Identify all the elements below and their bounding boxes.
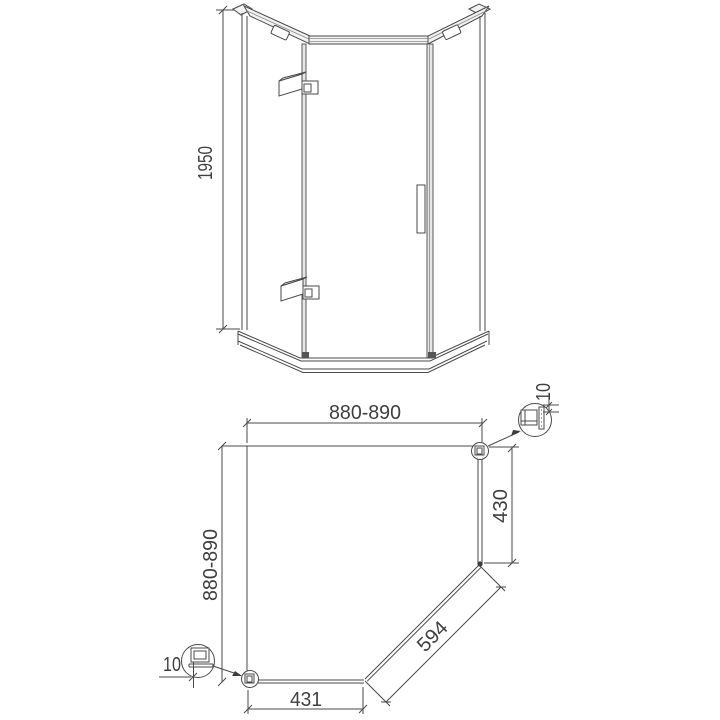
hinge-top-pin: [304, 84, 311, 92]
front-elevation-view: 1950: [195, 4, 490, 373]
tray-rim: [238, 331, 489, 361]
plan-bottom-panel-label: 431: [290, 689, 322, 711]
right-rail-clamp-icon: [442, 25, 461, 40]
detail-leader-arrow-icon: [232, 671, 242, 676]
plan-view: 880-890 880-890 430 594 431: [159, 383, 559, 714]
shower-enclosure-drawing: 1950: [0, 0, 720, 720]
shower-tray: [238, 331, 489, 373]
detail-profile-icon: [521, 410, 537, 425]
elevation-height-label: 1950: [195, 146, 217, 180]
plan-door-glass-panel: [365, 565, 481, 681]
plan-top-width-dimension: 880-890: [243, 402, 487, 443]
door-handle-stile: [427, 44, 433, 358]
hinge-bottom: [281, 277, 319, 301]
detail-callout-bottom-left: 10: [159, 645, 242, 689]
hinge-top: [279, 72, 318, 96]
plan-bottom-glass-panel: [243, 680, 364, 683]
elevation-height-dimension: 1950: [195, 6, 240, 333]
technical-drawing-page: 1950: [0, 0, 720, 720]
plan-door-label: 594: [413, 617, 453, 657]
door-foot-left: [302, 352, 309, 358]
right-wall-profile: [480, 13, 485, 331]
plan-bottom-panel-dimension: 431: [244, 687, 367, 714]
detail-top-right-label: 10: [533, 383, 555, 401]
dimension-line: [216, 6, 240, 333]
plan-right-panel-dimension: 430: [484, 444, 519, 567]
left-wall-profile: [242, 13, 247, 330]
center-top-rail: [309, 36, 429, 44]
door-foot-right: [428, 352, 436, 358]
detail-leader-arrow-icon: [511, 430, 521, 436]
plan-right-panel-label: 430: [490, 489, 512, 523]
plan-top-width-label: 880-890: [329, 402, 401, 424]
hinge-bottom-pin: [305, 289, 312, 297]
door-handle: [417, 185, 425, 233]
plan-left-depth-label: 880-890: [200, 529, 222, 601]
plan-right-glass-panel: [478, 454, 482, 563]
detail-callout-top-right: 10: [488, 383, 559, 446]
tray-outer-edge: [238, 341, 487, 373]
plan-corner-profile-bottom-left: [242, 671, 259, 688]
plan-corner-profile-top-right: [472, 443, 489, 460]
detail-bottom-left-label: 10: [163, 654, 181, 676]
plan-door-dimension: 594: [365, 566, 506, 706]
left-top-rail: [244, 6, 310, 44]
